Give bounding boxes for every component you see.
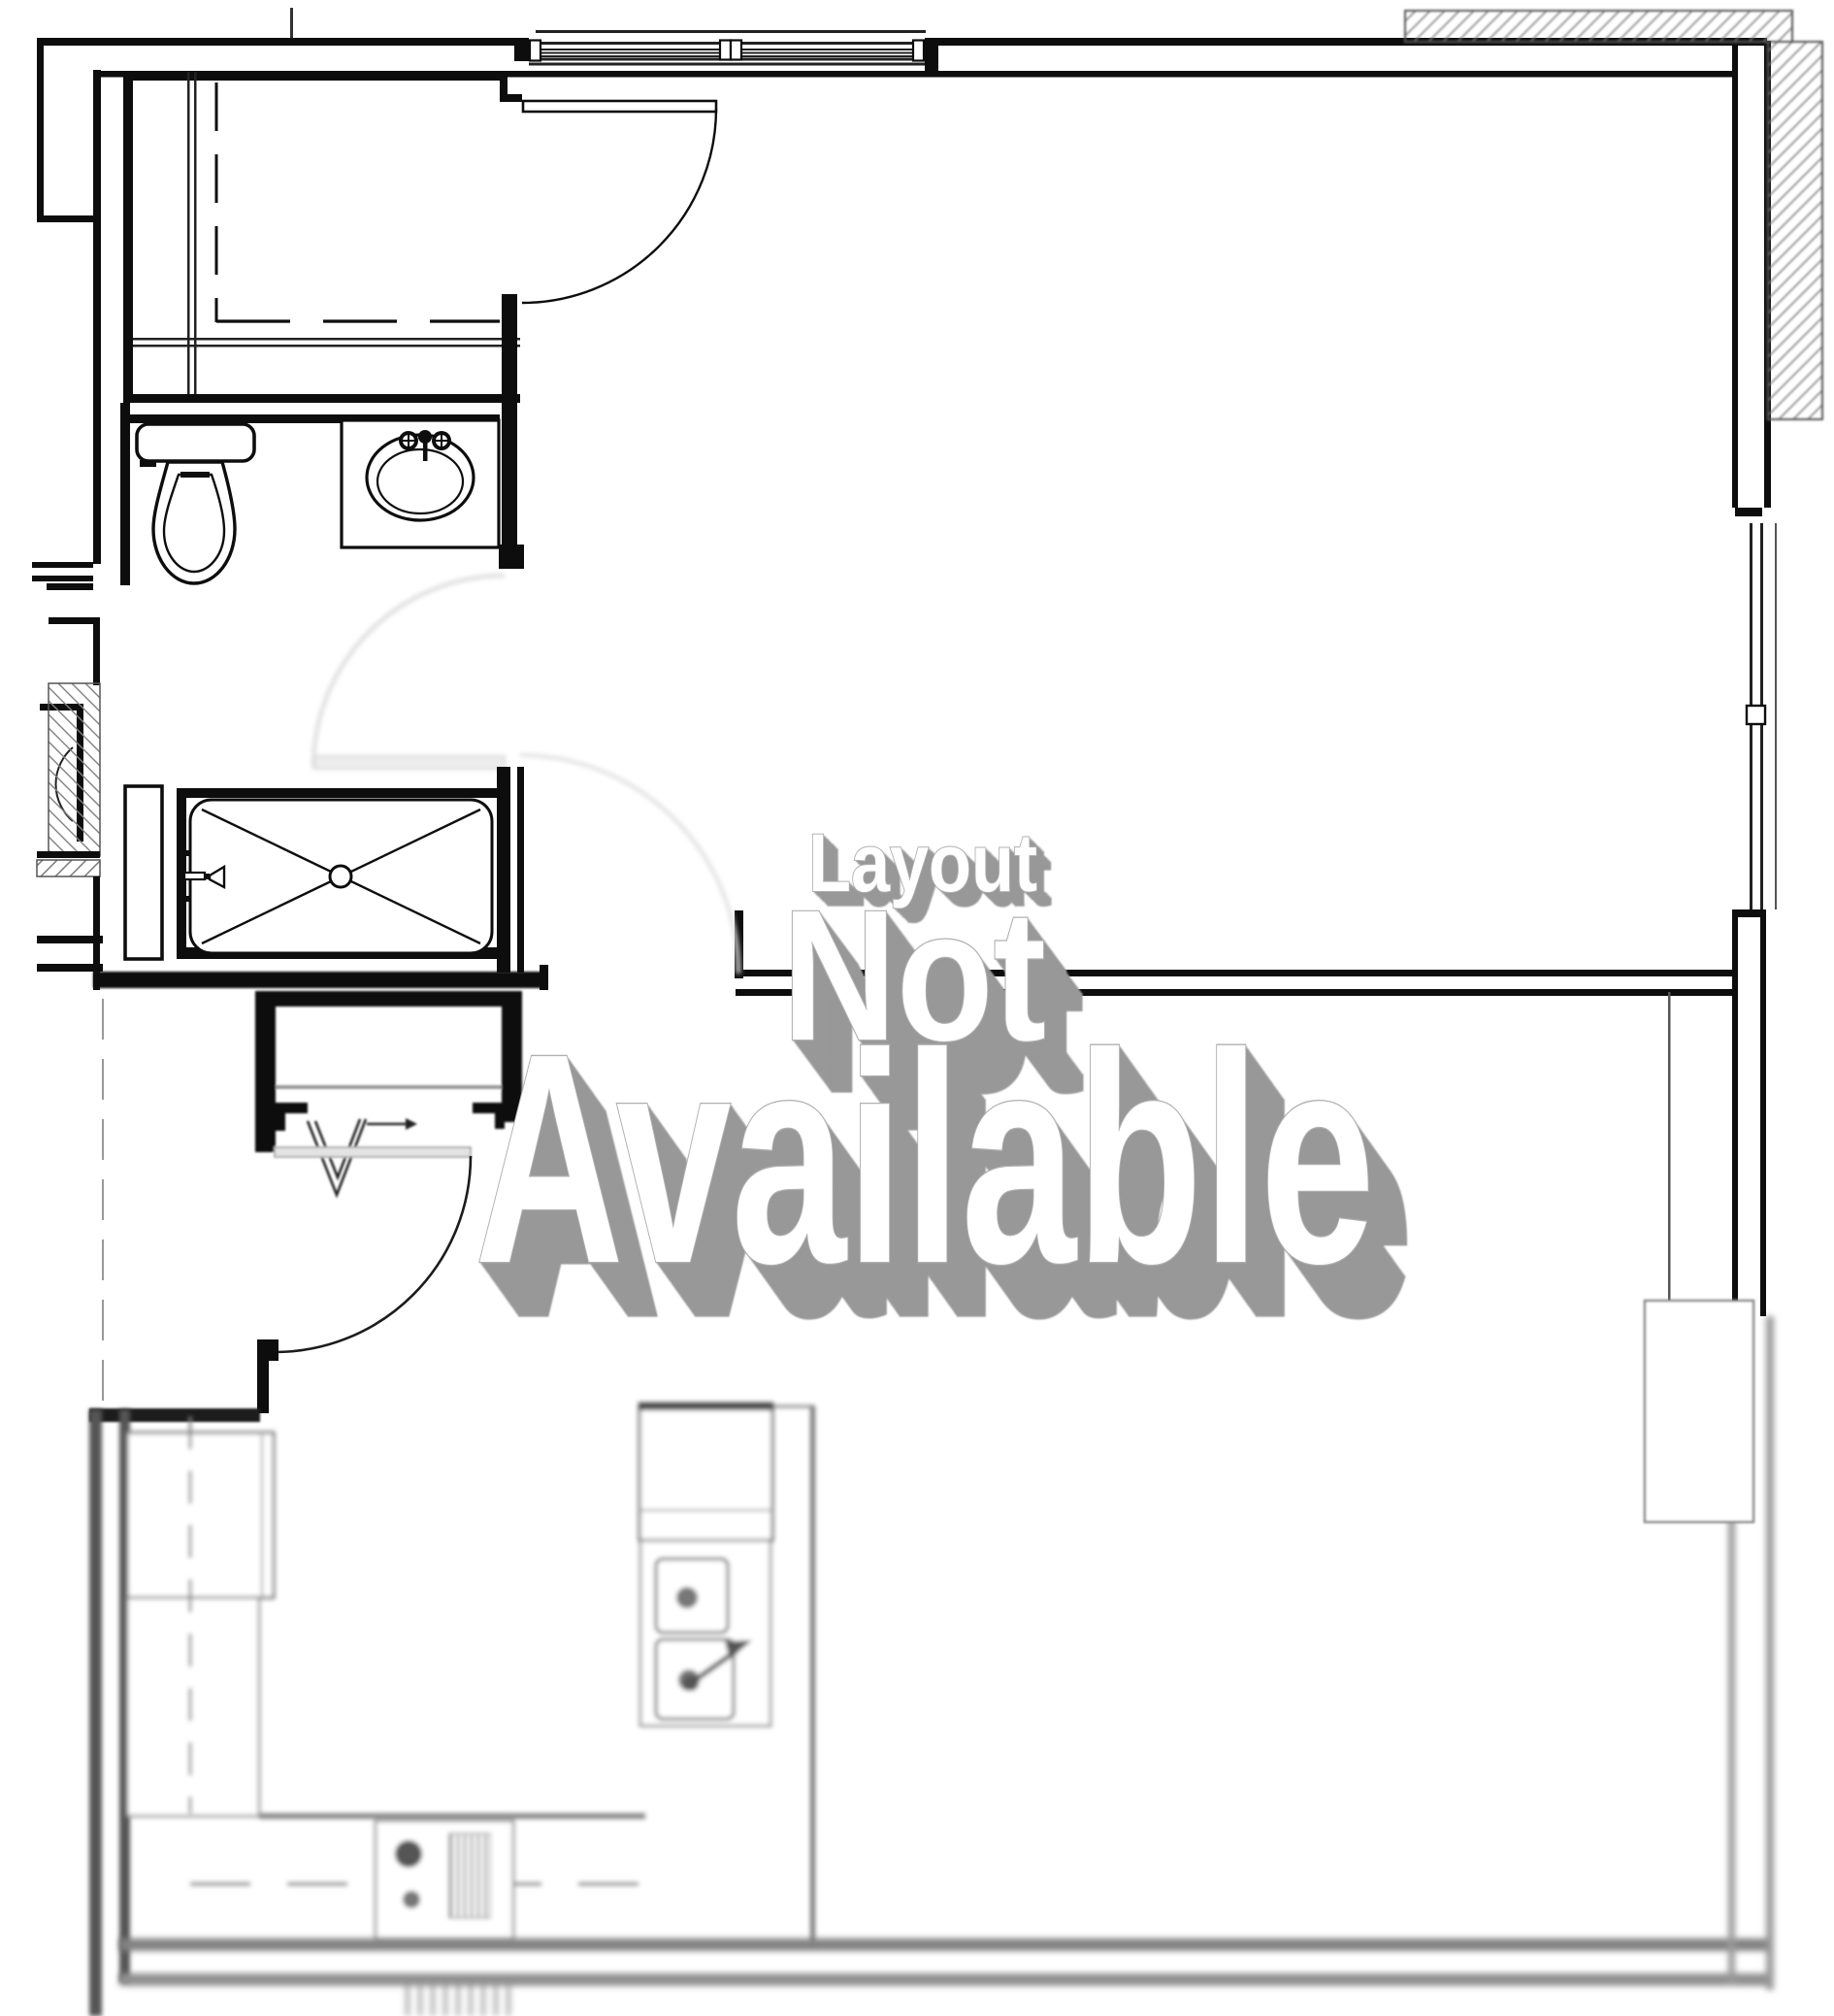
svg-text:Available: Available bbox=[475, 992, 1375, 1326]
